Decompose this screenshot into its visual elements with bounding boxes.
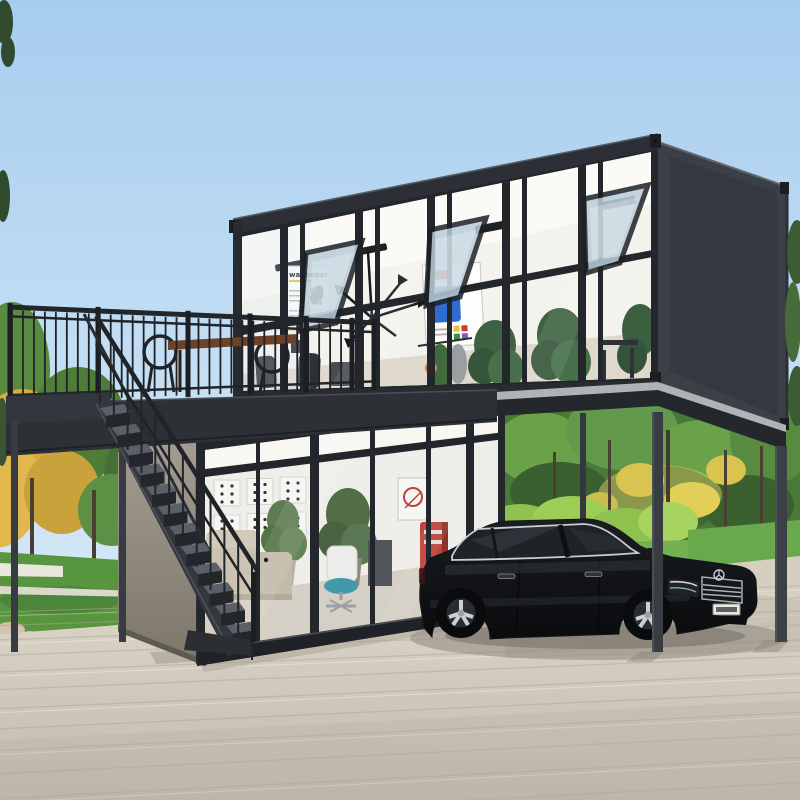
photo-container-house: wallpaper (0, 0, 800, 800)
door-handle-front (498, 574, 515, 579)
tail-lamp (419, 568, 425, 584)
landing-post-1 (11, 420, 18, 652)
rear-wheel (436, 588, 486, 638)
front-wheel (623, 590, 673, 640)
carport-post-right (775, 446, 787, 642)
door-handle-rear (585, 572, 602, 577)
scene-svg: wallpaper (0, 0, 800, 800)
